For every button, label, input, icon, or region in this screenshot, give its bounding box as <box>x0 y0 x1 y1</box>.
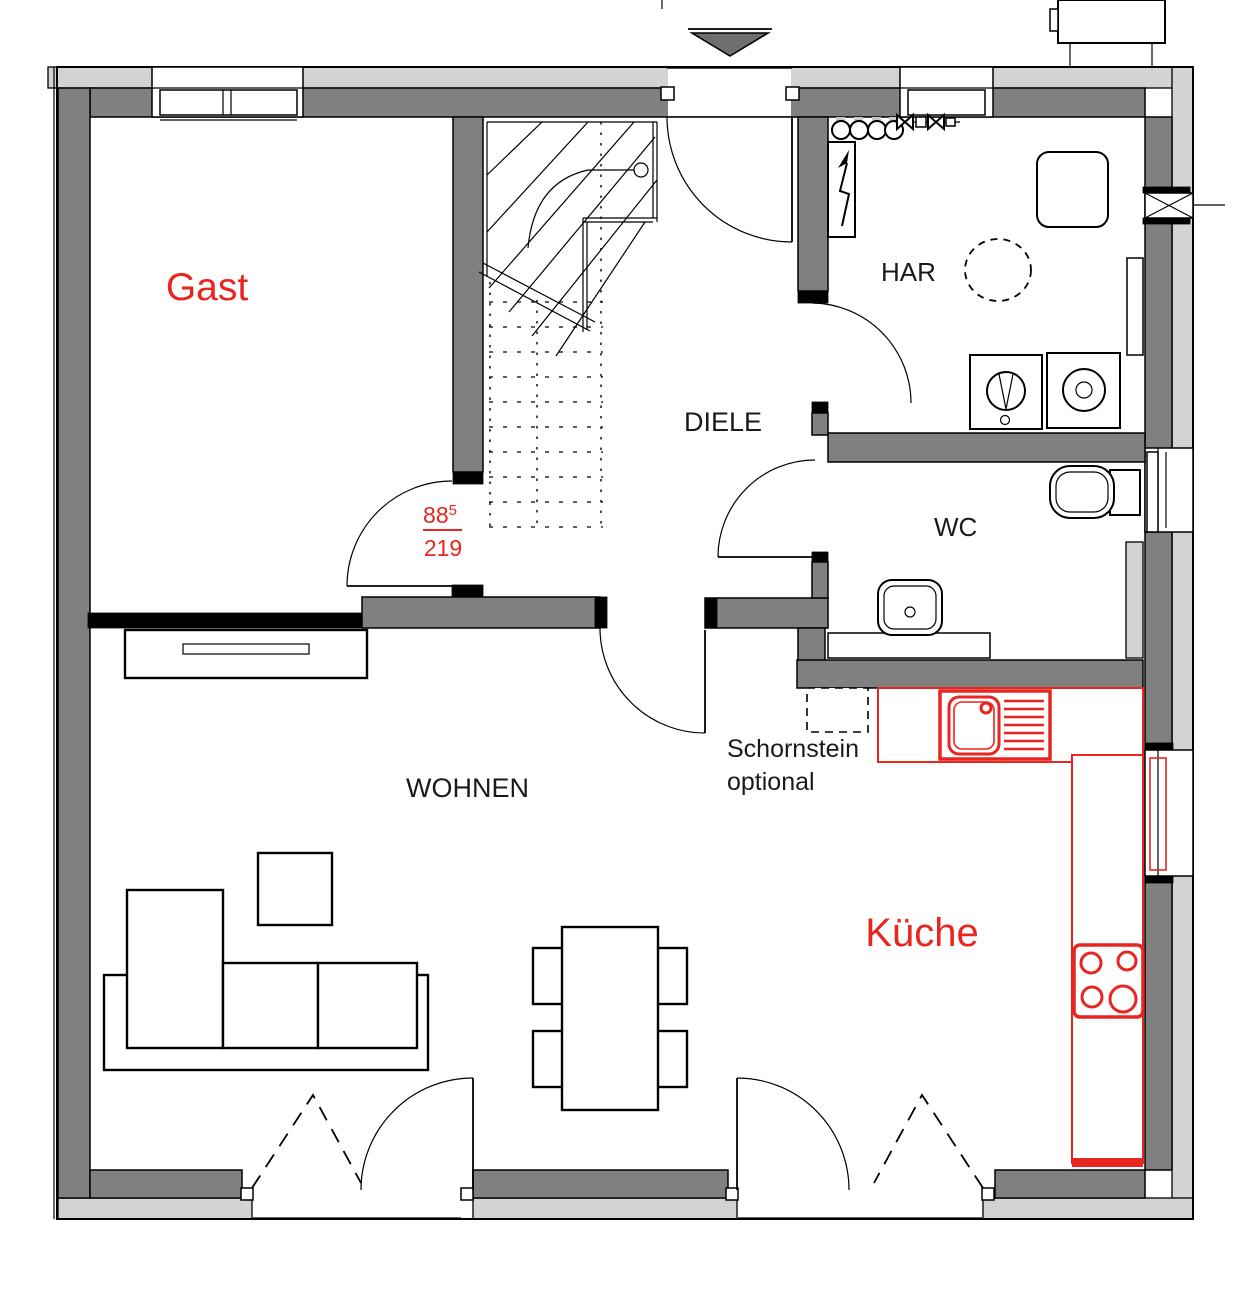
wall-bottom-mid <box>473 1170 728 1198</box>
gast-door <box>347 481 452 586</box>
room-label-diele: DIELE <box>684 407 762 437</box>
side-table <box>258 853 332 925</box>
toilet-icon <box>1050 466 1140 518</box>
window-gast <box>152 67 303 120</box>
diele-door-jamb-left <box>595 597 607 628</box>
kitchen-sink-icon <box>940 691 1050 759</box>
wall-bottom-right <box>995 1170 1145 1198</box>
wc-window-ledge <box>1126 542 1143 658</box>
wall-wc-kueche <box>797 660 1143 688</box>
entrance-door <box>667 117 792 242</box>
har-door-jamb-top <box>798 291 828 303</box>
door-dimension-width: 885 <box>423 502 457 528</box>
pipe-connection <box>850 121 868 139</box>
wall-bottom-left <box>90 1170 242 1198</box>
chair <box>533 948 563 1004</box>
door-dimension-height: 219 <box>424 535 462 561</box>
stair-tread <box>532 180 657 336</box>
stair-walkline-start <box>634 163 648 177</box>
washing-machine-icon <box>970 355 1042 429</box>
wall-wc-corner <box>798 628 825 662</box>
electric-panel <box>828 142 855 237</box>
room-label-wc: WC <box>934 512 977 542</box>
wc-door <box>718 460 815 557</box>
room-label-wohnen: WOHNEN <box>406 773 529 803</box>
stair-tread <box>489 122 634 288</box>
wall-diele-wc-lower <box>812 562 828 598</box>
duct-shaft <box>1127 258 1143 355</box>
terrace1-jamb-left <box>241 1188 253 1200</box>
pipe-connection <box>832 121 850 139</box>
wc-fixtures <box>828 466 1140 658</box>
window-kueche <box>1145 743 1193 883</box>
chair <box>657 1031 687 1087</box>
kitchen-counter-end <box>1072 1158 1143 1167</box>
wall-wohnen-diele-right <box>705 598 828 628</box>
wall-gast-stairs <box>453 117 483 472</box>
stair-tread <box>487 122 588 232</box>
chimney-label: Schornstein optional <box>727 735 859 796</box>
window-wc <box>1145 448 1193 532</box>
floor-plan-drawing: Gast DIELE HAR WC WOHNEN Küche Schornste… <box>0 0 1250 1306</box>
chair <box>657 948 687 1004</box>
wall-right-outer <box>1172 67 1193 1219</box>
wall-har-wc <box>828 433 1145 462</box>
wall-cap <box>453 472 483 484</box>
diele-door-jamb-right <box>705 598 717 628</box>
dining-table <box>562 927 658 1110</box>
room-label-kueche: Küche <box>865 911 978 955</box>
room-label-har: HAR <box>881 257 936 287</box>
terrace2-jamb-right <box>982 1188 994 1200</box>
door-dimension: 885 219 <box>423 502 462 561</box>
har-door-jamb-bottom <box>812 402 828 413</box>
chimney-block <box>1050 0 1165 66</box>
chair <box>533 1031 563 1087</box>
wall-diele-wc-upper <box>812 413 828 435</box>
terrace-door-right <box>737 1078 983 1190</box>
diele-wohnen-door <box>600 628 705 733</box>
room-label-gast: Gast <box>166 266 249 309</box>
wall-bottom-outer-left <box>58 1198 252 1219</box>
stair-cut-line <box>483 263 595 322</box>
terrace-door-left <box>252 1078 473 1190</box>
drainboard <box>1004 701 1044 749</box>
entrance-jamb-left <box>661 87 674 100</box>
har-fixtures <box>828 115 1143 429</box>
wall-left <box>58 88 90 1198</box>
staircase <box>479 122 657 528</box>
entrance-jamb-right <box>786 87 799 100</box>
stair-tread <box>487 122 542 175</box>
cooktop-icon <box>1074 945 1143 1017</box>
wall-gast-wohnen-black <box>88 613 362 628</box>
stair-tread <box>509 137 655 312</box>
wall-bottom-outer-right <box>983 1198 1193 1219</box>
water-tank <box>1037 152 1108 227</box>
gast-door-jamb <box>452 585 483 597</box>
washbasin-icon <box>878 580 942 635</box>
optional-equipment-dashed <box>965 239 1031 301</box>
stair-under-storage <box>489 122 603 528</box>
dining-set <box>533 927 687 1110</box>
chimney-label-line2: optional <box>727 768 815 796</box>
chimney-label-line1: Schornstein <box>727 735 859 763</box>
chimney-optional-box <box>807 688 868 732</box>
wall-wohnen-stairs <box>362 597 600 628</box>
floor-plan-page: Gast DIELE HAR WC WOHNEN Küche Schornste… <box>0 0 1250 1306</box>
pipe-connection <box>868 121 886 139</box>
wall-bottom-outer-mid <box>473 1198 737 1219</box>
wall-vent <box>1143 187 1225 224</box>
har-door <box>812 303 911 403</box>
terrace1-jamb-right <box>461 1188 473 1200</box>
wall-right-inner <box>1145 117 1172 1170</box>
wall-diele-har <box>798 117 828 291</box>
washbasin-counter <box>828 633 990 658</box>
entrance-opening <box>661 68 799 116</box>
window-har <box>900 67 993 117</box>
gast-sideboard <box>125 630 367 678</box>
entrance-marker-icon <box>662 0 772 56</box>
dryer-icon <box>1047 353 1120 428</box>
